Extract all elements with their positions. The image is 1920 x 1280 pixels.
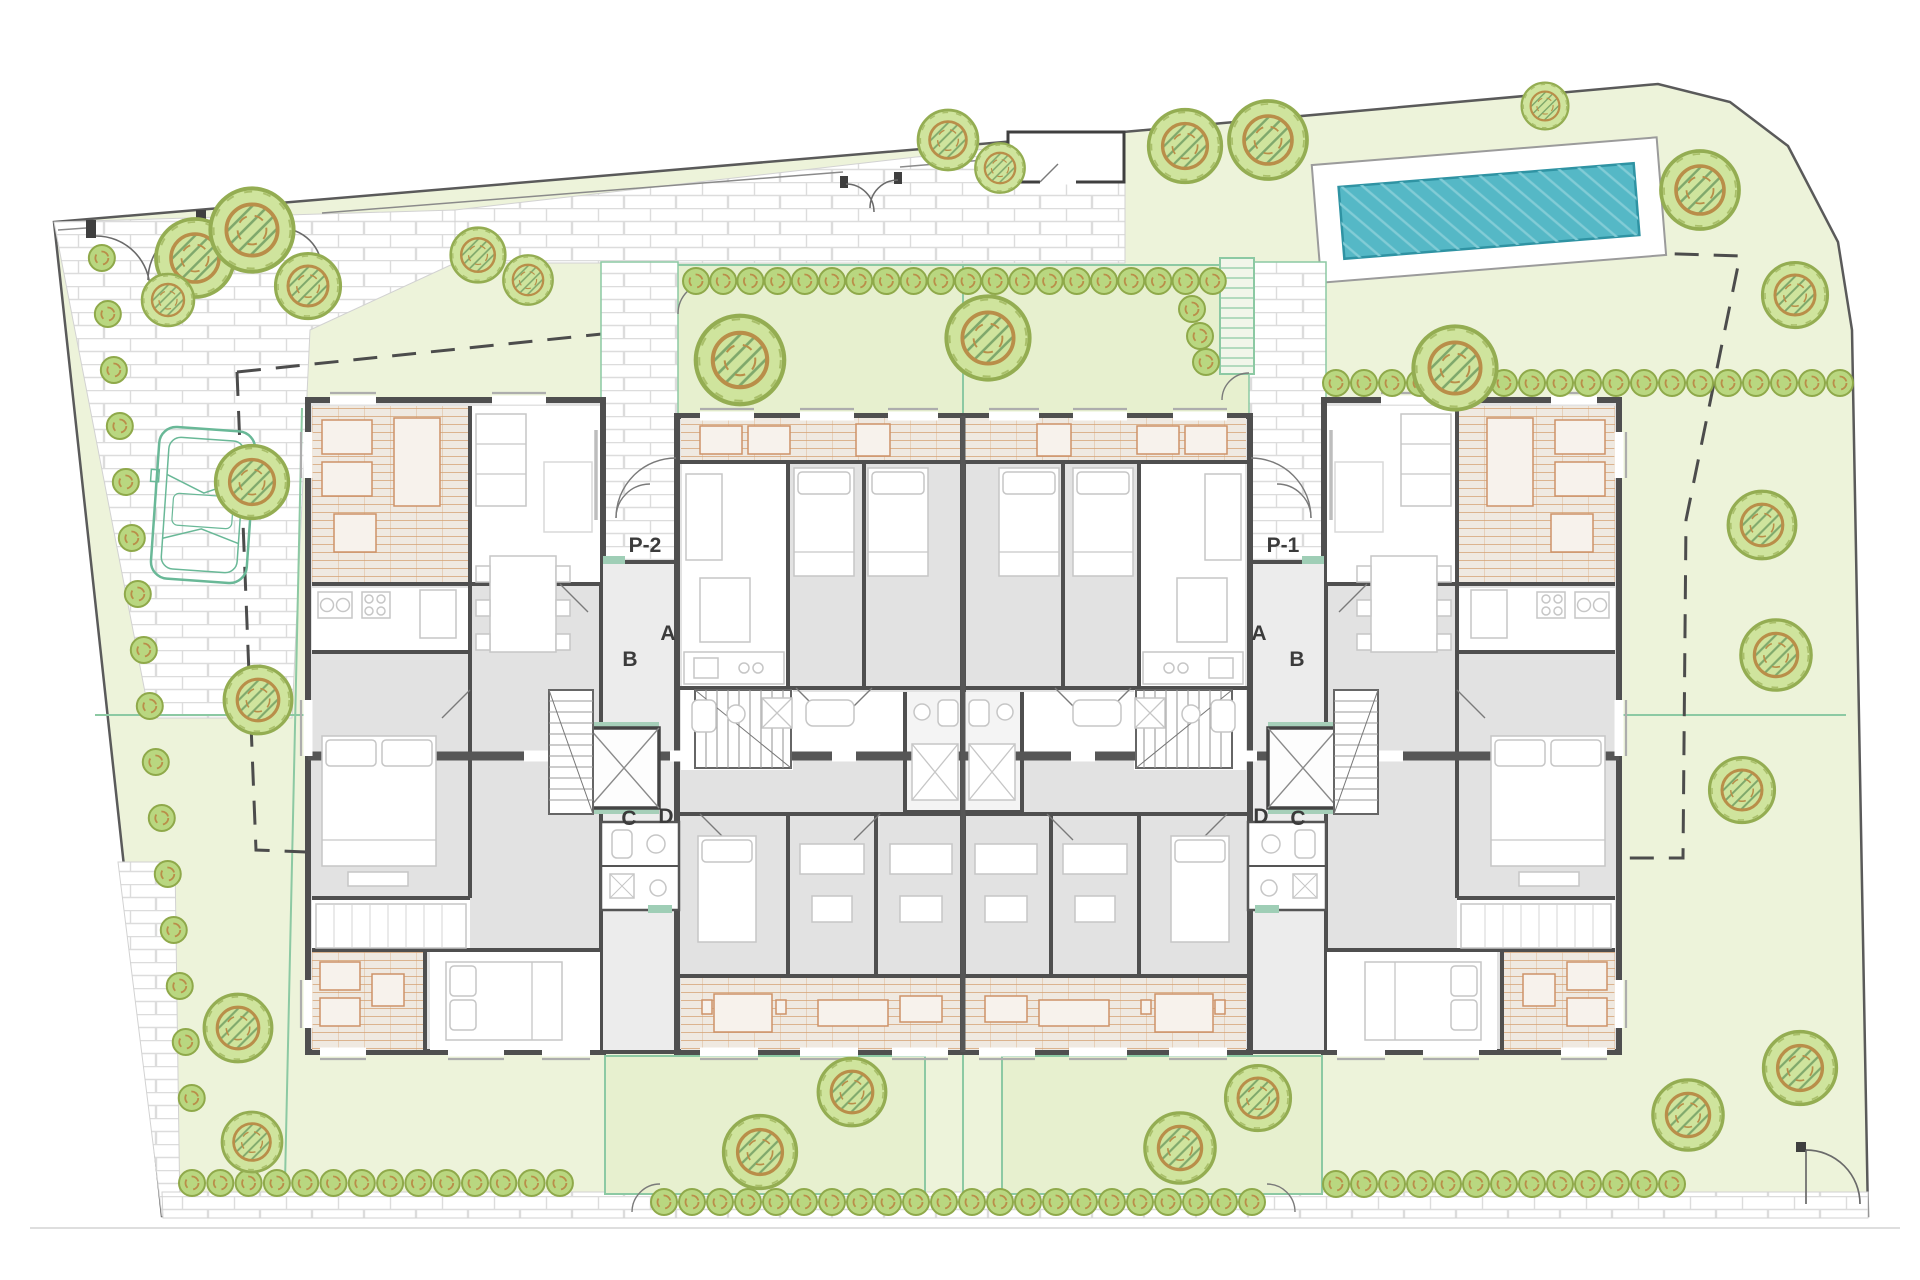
hedge-bush-icon (264, 1170, 290, 1196)
hedge-bush-icon (1435, 1171, 1461, 1197)
hedge-bush-icon (1127, 1189, 1153, 1215)
tree-icon (1710, 758, 1775, 823)
entrance-right-b: B (1289, 648, 1304, 671)
tree-icon (724, 1116, 797, 1189)
hedge-bush-icon (1193, 349, 1219, 375)
hedge-bush-icon (707, 1189, 733, 1215)
hedge-bush-icon (735, 1189, 761, 1215)
hedge-bush-icon (490, 1170, 516, 1196)
hedge-bush-icon (1519, 370, 1545, 396)
tree-icon (946, 296, 1029, 379)
hedge-bush-icon (1463, 1171, 1489, 1197)
hedge-bush-icon (1519, 1171, 1545, 1197)
tree-icon (696, 316, 784, 404)
hedge-bush-icon (1575, 1171, 1601, 1197)
hedge-bush-icon (155, 861, 181, 887)
hedge-bush-icon (1071, 1189, 1097, 1215)
entrance-left-c: C (621, 807, 636, 830)
hedge-bush-icon (113, 469, 139, 495)
hedge-bush-icon (292, 1170, 318, 1196)
hedge-bush-icon (982, 268, 1008, 294)
tree-icon (216, 446, 289, 519)
hedge-bush-icon (1323, 1171, 1349, 1197)
hedge-bush-icon (1323, 370, 1349, 396)
hedge-bush-icon (95, 301, 121, 327)
tree-icon (1661, 151, 1739, 229)
hedge-bush-icon (651, 1189, 677, 1215)
hedge-bush-icon (931, 1189, 957, 1215)
hedge-bush-icon (377, 1170, 403, 1196)
hedge-bush-icon (107, 413, 133, 439)
hedge-bush-icon (1091, 268, 1117, 294)
hedge-bush-icon (959, 1189, 985, 1215)
hedge-bush-icon (434, 1170, 460, 1196)
tree-icon (276, 254, 341, 319)
hedge-bush-icon (1547, 370, 1573, 396)
hedge-bush-icon (137, 693, 163, 719)
hedge-bush-icon (1239, 1189, 1265, 1215)
tree-icon (1226, 1066, 1291, 1131)
hedge-bush-icon (119, 525, 145, 551)
hedge-bush-icon (131, 637, 157, 663)
hedge-bush-icon (149, 805, 175, 831)
west-sidewalk-paving (118, 862, 180, 1216)
hedge-bush-icon (987, 1189, 1013, 1215)
tree-icon (451, 228, 506, 283)
tree-icon (1145, 1113, 1215, 1183)
hedge-bush-icon (1179, 296, 1205, 322)
hedge-bush-icon (1009, 268, 1035, 294)
hedge-bush-icon (819, 1189, 845, 1215)
hedge-bush-icon (405, 1170, 431, 1196)
hedge-bush-icon (547, 1170, 573, 1196)
hedge-bush-icon (1631, 370, 1657, 396)
hedge-bush-icon (1771, 370, 1797, 396)
tree-icon (222, 1112, 282, 1172)
hedge-bush-icon (763, 1189, 789, 1215)
hedge-bush-icon (1603, 1171, 1629, 1197)
hedge-bush-icon (1659, 370, 1685, 396)
entrance-right-c: C (1290, 807, 1305, 830)
hedge-bush-icon (1379, 370, 1405, 396)
hedge-bush-icon (792, 268, 818, 294)
hedge-bush-icon (1064, 268, 1090, 294)
entrance-left-a: A (660, 622, 675, 645)
hedge-bush-icon (1118, 268, 1144, 294)
hedge-bush-icon (901, 268, 927, 294)
tree-icon (1764, 1032, 1837, 1105)
hedge-bush-icon (683, 268, 709, 294)
hedge-bush-icon (1043, 1189, 1069, 1215)
tree-icon (1413, 326, 1496, 409)
hedge-bush-icon (955, 268, 981, 294)
hedge-bush-icon (349, 1170, 375, 1196)
hedge-bush-icon (819, 268, 845, 294)
hedge-bush-icon (161, 917, 187, 943)
entrance-left-d: D (658, 805, 673, 828)
hedge-bush-icon (1145, 268, 1171, 294)
hedge-bush-icon (173, 1029, 199, 1055)
hedge-bush-icon (179, 1170, 205, 1196)
hedge-bush-icon (765, 268, 791, 294)
hedge-bush-icon (207, 1170, 233, 1196)
entrance-right-a: A (1251, 622, 1266, 645)
hedge-bush-icon (519, 1170, 545, 1196)
tree-icon (918, 110, 978, 170)
hedge-bush-icon (462, 1170, 488, 1196)
tree-icon (1229, 101, 1307, 179)
hedge-bush-icon (1015, 1189, 1041, 1215)
bin-store (1008, 132, 1124, 182)
site-plan-drawing: P-2 A B C D P-1 A B D C (0, 0, 1920, 1280)
hedge-bush-icon (928, 268, 954, 294)
tree-icon (204, 994, 272, 1062)
hedge-bush-icon (1037, 268, 1063, 294)
entrance-left-b: B (622, 648, 637, 671)
hedge-bush-icon (1099, 1189, 1125, 1215)
hedge-bush-icon (847, 1189, 873, 1215)
tree-icon (503, 255, 552, 304)
hedge-bush-icon (1743, 370, 1769, 396)
hedge-bush-icon (1659, 1171, 1685, 1197)
hedge-bush-icon (167, 973, 193, 999)
tree-icon (142, 274, 194, 326)
hedge-bush-icon (179, 1085, 205, 1111)
hedge-bush-icon (1351, 1171, 1377, 1197)
hedge-bush-icon (1827, 370, 1853, 396)
hedge-bush-icon (1173, 268, 1199, 294)
entrance-right-d: D (1253, 805, 1268, 828)
hedge-bush-icon (1547, 1171, 1573, 1197)
hedge-bush-icon (1603, 370, 1629, 396)
hedge-bush-icon (143, 749, 169, 775)
hedge-bush-icon (1200, 268, 1226, 294)
hedge-bush-icon (903, 1189, 929, 1215)
hedge-bush-icon (1211, 1189, 1237, 1215)
hedge-bush-icon (1155, 1189, 1181, 1215)
portal-right-label: P-1 (1267, 534, 1300, 557)
tree-icon (224, 666, 292, 734)
hedge-bush-icon (679, 1189, 705, 1215)
hedge-bush-icon (1351, 370, 1377, 396)
tree-icon (1741, 620, 1811, 690)
tree-icon (1149, 110, 1222, 183)
hedge-bush-icon (1631, 1171, 1657, 1197)
tree-icon (1763, 263, 1828, 328)
tree-icon (1653, 1080, 1723, 1150)
hedge-bush-icon (101, 357, 127, 383)
tree-icon (818, 1058, 886, 1126)
tree-icon (210, 188, 293, 271)
hedge-bush-icon (846, 268, 872, 294)
hedge-bush-icon (1379, 1171, 1405, 1197)
site-plan-sheet: P-2 A B C D P-1 A B D C (0, 0, 1920, 1280)
hedge-bush-icon (1687, 370, 1713, 396)
hedge-bush-icon (125, 581, 151, 607)
hedge-bush-icon (710, 268, 736, 294)
hedge-bush-icon (1187, 323, 1213, 349)
hedge-bush-icon (737, 268, 763, 294)
hedge-bush-icon (873, 268, 899, 294)
tree-icon (1728, 491, 1796, 559)
hedge-bush-icon (791, 1189, 817, 1215)
portal-left-label: P-2 (629, 534, 662, 557)
hedge-bush-icon (89, 245, 115, 271)
hedge-bush-icon (1183, 1189, 1209, 1215)
hedge-bush-icon (1407, 1171, 1433, 1197)
hedge-bush-icon (321, 1170, 347, 1196)
tree-icon (1522, 83, 1569, 130)
tree-icon (975, 143, 1024, 192)
hedge-bush-icon (236, 1170, 262, 1196)
hedge-bush-icon (875, 1189, 901, 1215)
hedge-bush-icon (1491, 1171, 1517, 1197)
hedge-bush-icon (1715, 370, 1741, 396)
hedge-bush-icon (1799, 370, 1825, 396)
hedge-bush-icon (1575, 370, 1601, 396)
